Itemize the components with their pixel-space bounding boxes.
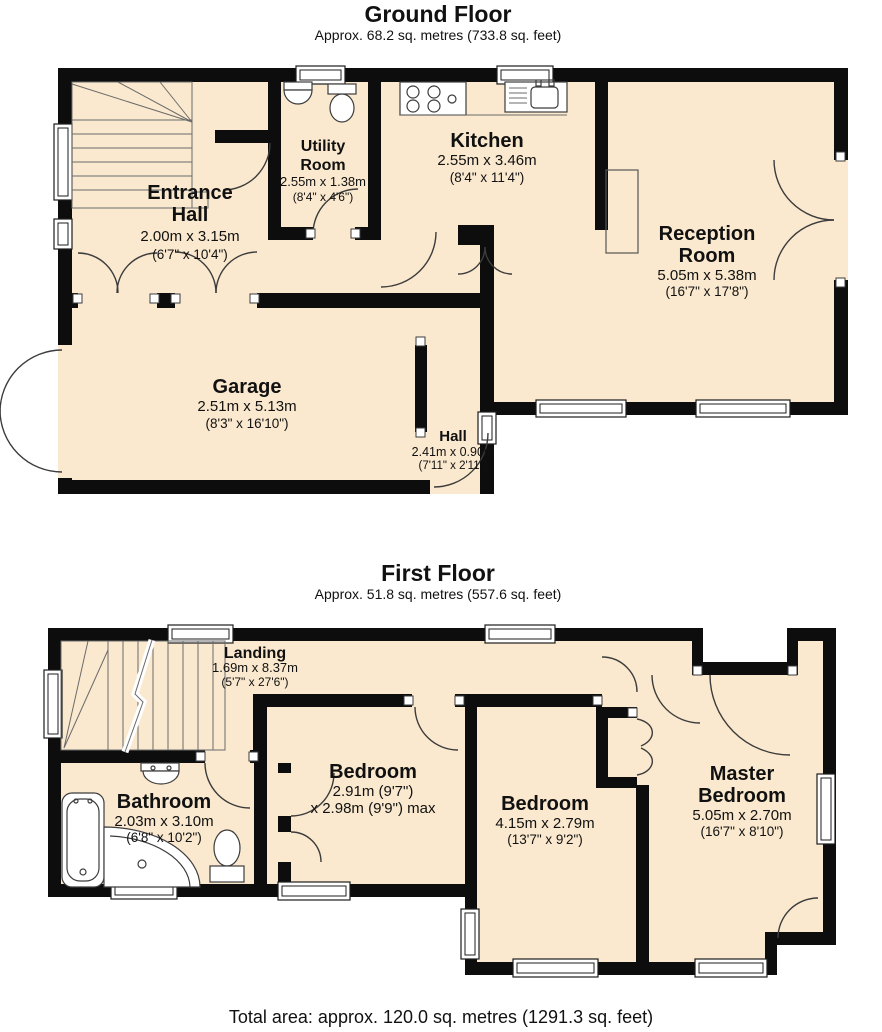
window: [54, 124, 72, 200]
room-dims-ft: (5'7" x 27'6"): [221, 675, 288, 689]
room-dims-ft: (6'8" x 10'2"): [126, 830, 202, 845]
room-dims-ft: (7'11" x 2'11"): [418, 460, 487, 472]
door-jamb: [306, 229, 315, 238]
wall: [368, 82, 381, 240]
room-label-bathroom: Bathroom: [117, 791, 211, 813]
door-jamb: [455, 696, 464, 705]
wall: [257, 293, 480, 308]
room-label-master-bedroom: Bedroom: [698, 785, 786, 807]
room-dims-ft: (16'7" x 8'10"): [700, 824, 783, 839]
window: [497, 66, 553, 84]
room-dims-ft: (6'7" x 10'4"): [152, 247, 228, 262]
wall: [58, 480, 430, 494]
door-jamb: [836, 152, 845, 161]
door-jamb: [416, 337, 425, 346]
wall: [834, 82, 848, 160]
floorplan-page: Entrance Hall 2.00m x 3.15m (6'7" x 10'4…: [0, 0, 882, 1032]
first-floor-subtitle: Approx. 51.8 sq. metres (557.6 sq. feet): [315, 586, 562, 602]
door-jamb: [351, 229, 360, 238]
door-jamb: [196, 752, 205, 761]
room-label-garage: Garage: [213, 376, 282, 398]
first-floor-plan: Landing 1.69m x 8.37m (5'7" x 27'6") Bat…: [44, 625, 836, 977]
wall: [692, 662, 798, 675]
first-floor-title: First Floor: [381, 560, 495, 586]
door-jamb: [73, 294, 82, 303]
room-label-reception: Reception: [659, 223, 756, 245]
door-jamb: [693, 666, 702, 675]
window: [695, 959, 767, 977]
window: [536, 400, 626, 417]
window: [278, 882, 350, 900]
window: [696, 400, 790, 417]
room-label-bedroom-large: Bedroom: [501, 793, 589, 815]
room-dims-m: 2.00m x 3.15m: [140, 228, 239, 245]
door-jamb: [416, 428, 425, 437]
wall: [465, 694, 602, 707]
window: [168, 625, 233, 643]
room-dims-m: 4.15m x 2.79m: [495, 815, 594, 832]
wall: [278, 763, 291, 773]
door-jamb: [250, 294, 259, 303]
room-label-kitchen: Kitchen: [450, 130, 523, 152]
wall: [48, 628, 703, 641]
window: [817, 774, 835, 844]
room-dims-m: 2.51m x 5.13m: [197, 398, 296, 415]
toilet-bowl: [214, 830, 240, 866]
room-label-hall: Hall: [439, 428, 467, 445]
door-jamb: [628, 708, 637, 717]
room-label-utility: Utility: [301, 138, 346, 155]
room-dims-m: 2.55m x 1.38m: [280, 174, 366, 189]
ground-floor-subtitle: Approx. 68.2 sq. metres (733.8 sq. feet): [315, 27, 562, 43]
toilet-cistern: [210, 866, 244, 882]
utility-basin-back: [284, 82, 312, 90]
basin-back: [141, 763, 179, 771]
room-dims-m: 2.03m x 3.10m: [114, 813, 213, 830]
wall: [636, 785, 649, 975]
wall: [254, 750, 267, 897]
wall: [215, 130, 270, 143]
garage-door-arc: [0, 410, 62, 472]
wall: [608, 777, 637, 788]
room-label-master-bedroom: Master: [710, 763, 775, 785]
room-dims-ft: (8'4" x 11'4"): [450, 170, 525, 185]
room-dims-m: 5.05m x 5.38m: [657, 267, 756, 284]
wall: [415, 345, 427, 432]
room-dims-ft: (16'7" x 17'8"): [665, 284, 748, 299]
room-dims-ft: (8'4" x 4'6"): [293, 190, 353, 204]
room-dims-m: 5.05m x 2.70m: [692, 807, 791, 824]
door-jamb: [836, 278, 845, 287]
window: [485, 625, 555, 643]
floor-plan-drawing: Entrance Hall 2.00m x 3.15m (6'7" x 10'4…: [0, 0, 882, 1032]
window: [44, 670, 62, 738]
door-jamb: [404, 696, 413, 705]
wall: [58, 68, 848, 82]
room-label-utility: Room: [300, 157, 345, 174]
door-jamb: [249, 752, 258, 761]
window: [513, 959, 598, 977]
room-label-bedroom-small: Bedroom: [329, 761, 417, 783]
room-dims-ft: (13'7" x 9'2"): [507, 832, 583, 847]
ground-floor-title: Ground Floor: [365, 1, 512, 27]
door-jamb: [788, 666, 797, 675]
room-dims-ft: x 2.98m (9'9") max: [311, 800, 436, 817]
toilet-bowl: [330, 94, 354, 122]
ground-floor-plan: Entrance Hall 2.00m x 3.15m (6'7" x 10'4…: [0, 66, 848, 494]
wall: [480, 402, 848, 415]
wall: [268, 82, 281, 240]
total-area-footer: Total area: approx. 120.0 sq. metres (12…: [229, 1007, 653, 1027]
door-jamb: [150, 294, 159, 303]
window: [461, 909, 479, 959]
room-dims-ft: (8'3" x 16'10"): [205, 416, 288, 431]
door-jamb: [593, 696, 602, 705]
wall: [596, 707, 608, 788]
wall: [834, 280, 848, 415]
toilet-cistern: [328, 84, 356, 94]
room-dims-m: 1.69m x 8.37m: [212, 660, 298, 675]
room-dims-m: 2.41m x 0.90m: [412, 445, 495, 459]
room-label-reception: Room: [679, 245, 736, 267]
garage-door-arc: [0, 350, 62, 412]
wall: [267, 694, 412, 707]
door-jamb: [171, 294, 180, 303]
wall: [278, 816, 291, 832]
room-dims-m: 2.55m x 3.46m: [437, 152, 536, 169]
room-label-entrance-hall: Entrance: [147, 182, 233, 204]
room-dims-m: 2.91m (9'7"): [333, 783, 414, 800]
room-label-entrance-hall: Hall: [172, 204, 209, 226]
window: [296, 66, 345, 84]
wall: [458, 225, 494, 245]
